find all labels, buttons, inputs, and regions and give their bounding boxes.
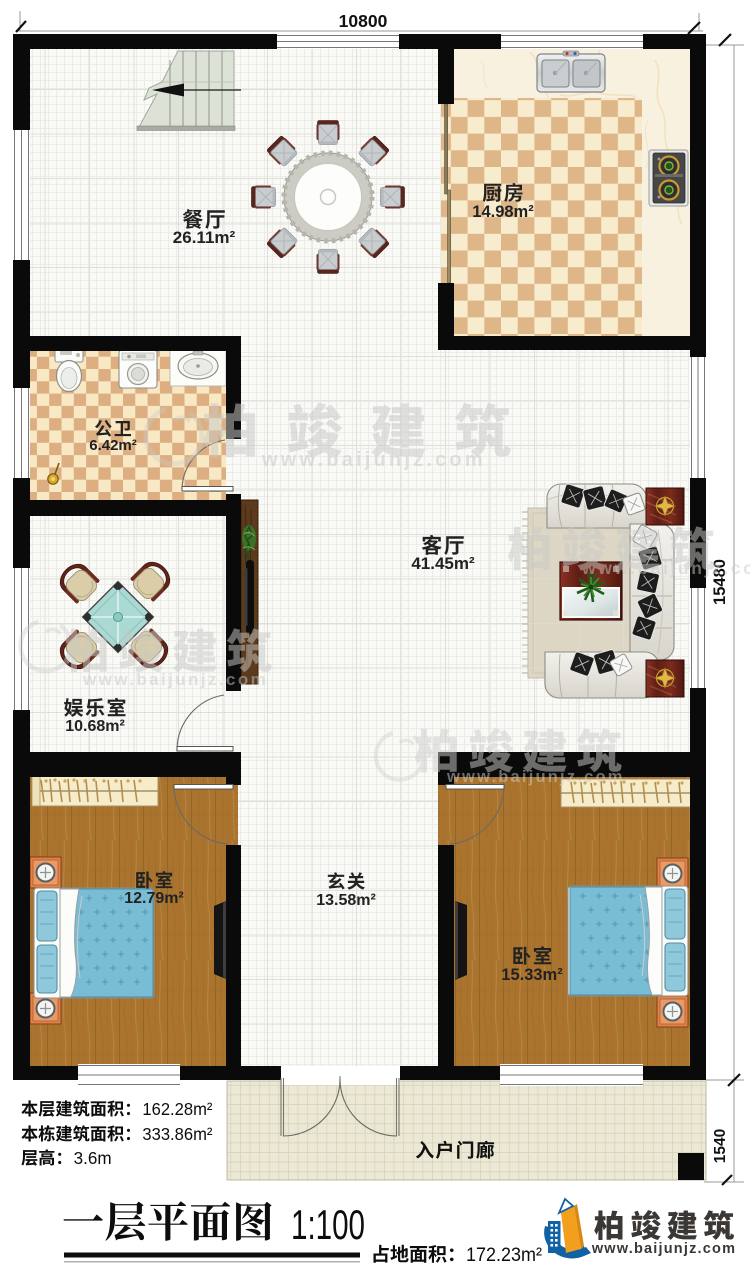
svg-text:12.79m²: 12.79m² bbox=[124, 890, 184, 907]
svg-text:6.42m²: 6.42m² bbox=[89, 437, 137, 454]
svg-text:www.baijunjz.com: www.baijunjz.com bbox=[591, 1241, 736, 1257]
svg-text:www.baijunjz.com: www.baijunjz.com bbox=[446, 768, 625, 786]
svg-text:172.23m²: 172.23m² bbox=[466, 1245, 542, 1266]
svg-text:10.68m²: 10.68m² bbox=[65, 718, 125, 735]
svg-text:41.45m²: 41.45m² bbox=[411, 554, 475, 573]
svg-text:www.baijunjz.com: www.baijunjz.com bbox=[581, 558, 750, 578]
svg-text:333.86m²: 333.86m² bbox=[142, 1124, 212, 1144]
svg-text:10800: 10800 bbox=[339, 11, 388, 31]
svg-text:3.6m: 3.6m bbox=[74, 1148, 112, 1168]
svg-text:162.28m²: 162.28m² bbox=[142, 1099, 212, 1119]
svg-text:26.11m²: 26.11m² bbox=[173, 228, 236, 247]
svg-text:15.33m²: 15.33m² bbox=[501, 966, 563, 984]
svg-text:14.98m²: 14.98m² bbox=[472, 203, 534, 221]
svg-text:1540: 1540 bbox=[712, 1129, 729, 1163]
svg-text:1:100: 1:100 bbox=[291, 1201, 365, 1248]
svg-text:13.58m²: 13.58m² bbox=[316, 892, 376, 909]
svg-text:www.baijunjz.com: www.baijunjz.com bbox=[82, 670, 268, 689]
svg-text:www.baijunjz.com: www.baijunjz.com bbox=[261, 449, 486, 471]
